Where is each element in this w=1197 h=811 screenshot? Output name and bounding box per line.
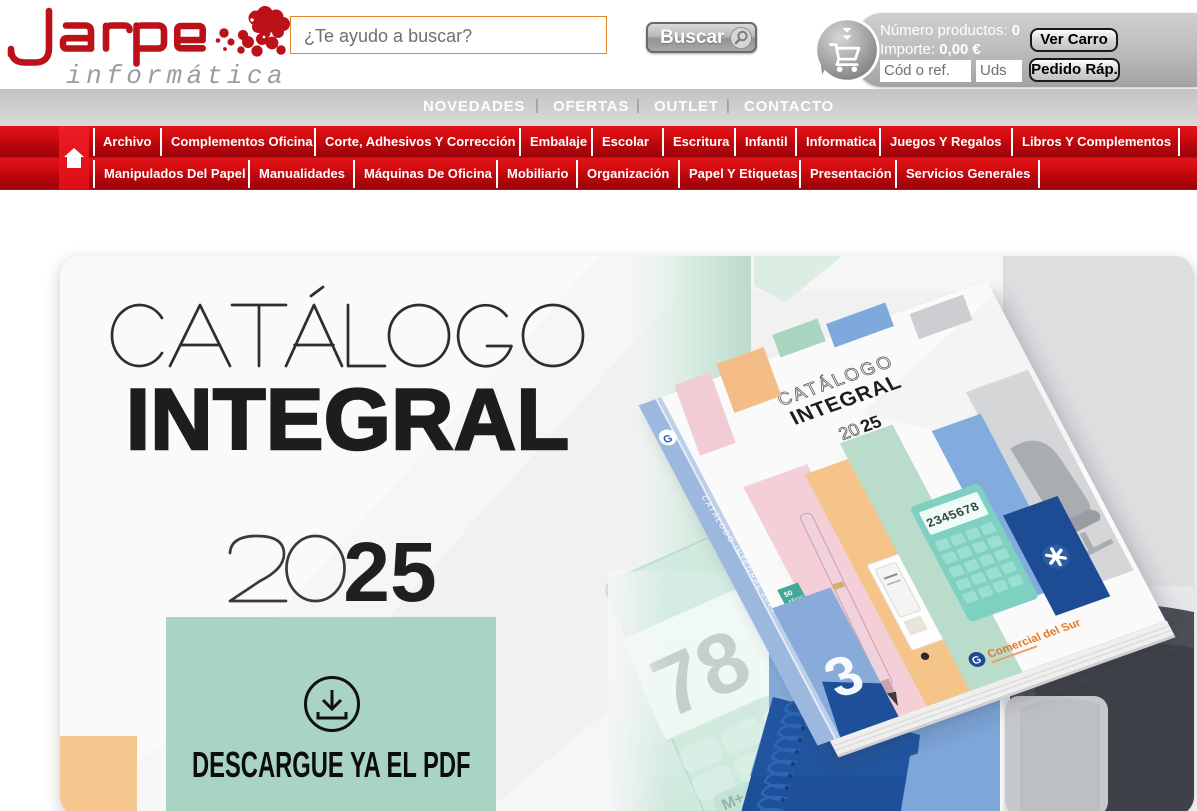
svg-text:INTEGRAL: INTEGRAL — [126, 372, 570, 468]
svg-text:DESCARGUE YA EL PDF: DESCARGUE YA EL PDF — [192, 745, 471, 785]
svg-text:informática: informática — [66, 61, 287, 90]
svg-text:25: 25 — [343, 525, 436, 619]
